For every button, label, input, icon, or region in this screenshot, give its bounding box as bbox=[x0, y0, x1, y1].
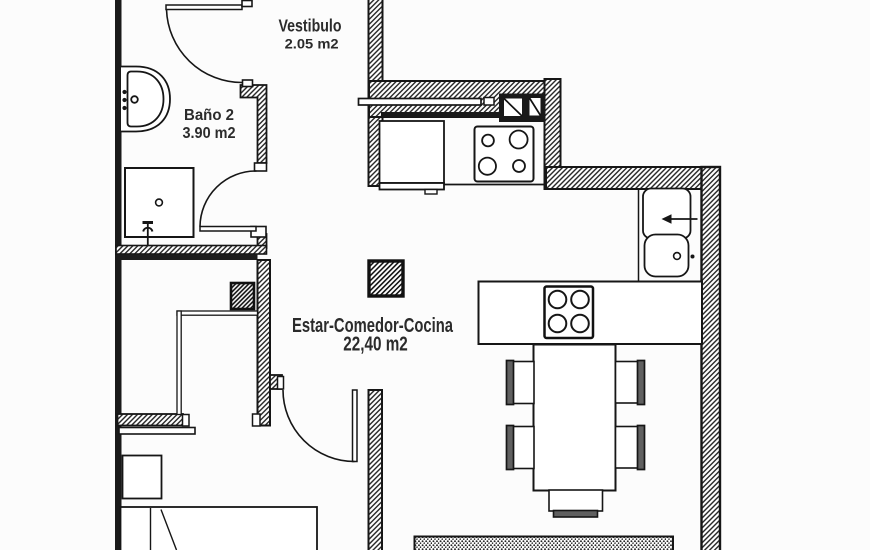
svg-text:22,40 m2: 22,40 m2 bbox=[343, 332, 408, 355]
svg-text:3.90 m2: 3.90 m2 bbox=[183, 125, 236, 142]
svg-text:Baño 2: Baño 2 bbox=[184, 107, 234, 124]
svg-text:Vestibulo: Vestibulo bbox=[279, 16, 342, 36]
svg-text:2.05 m2: 2.05 m2 bbox=[285, 36, 339, 52]
